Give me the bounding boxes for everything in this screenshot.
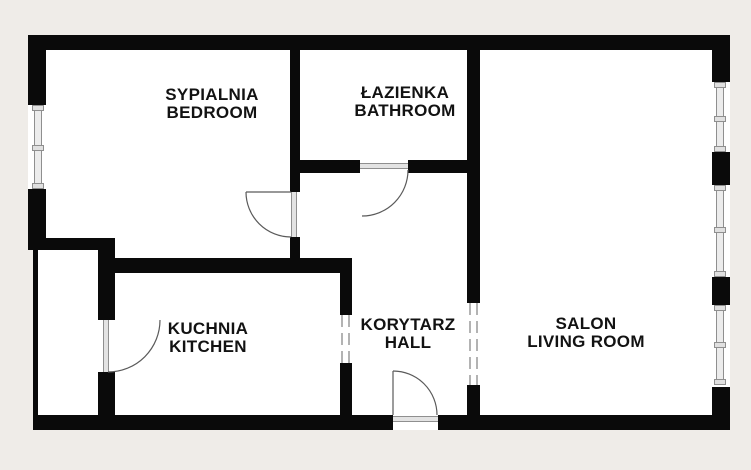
window-right-1-cap-bottom — [714, 146, 726, 152]
window-right-3-cap-bottom — [714, 379, 726, 385]
window-right-2-cap-mid — [714, 227, 726, 233]
room-label-living-room-pl: SALON — [486, 315, 686, 333]
window-right-2-cap-bottom — [714, 271, 726, 277]
room-label-bathroom: ŁAZIENKA BATHROOM — [305, 84, 505, 120]
window-right-3-cap-mid — [714, 342, 726, 348]
wall-kitchen-top — [115, 258, 352, 273]
room-label-bedroom-pl: SYPIALNIA — [112, 86, 312, 104]
window-right-1-cap-top — [714, 82, 726, 88]
wall-right-mid-2 — [712, 277, 730, 305]
room-label-hall: KORYTARZ HALL — [308, 316, 508, 352]
window-right-3-cap-top — [714, 305, 726, 311]
wall-right-upper — [712, 35, 730, 82]
wall-balcony-right-upper — [98, 250, 115, 320]
wall-left-thin — [33, 250, 38, 415]
wall-right-mid-1 — [712, 152, 730, 185]
wall-bathroom-bottom-right — [408, 160, 468, 173]
floor-area-upper — [28, 35, 730, 250]
wall-bottom-right — [438, 415, 730, 430]
bedroom-door — [291, 192, 297, 237]
room-label-bathroom-en: BATHROOM — [305, 102, 505, 120]
wall-bathroom-bottom-left — [290, 160, 360, 173]
room-label-kitchen-pl: KUCHNIA — [108, 320, 308, 338]
window-left-cap-top — [32, 105, 44, 111]
room-label-bathroom-pl: ŁAZIENKA — [305, 84, 505, 102]
window-left-cap-mid — [32, 145, 44, 151]
wall-right-lower — [712, 387, 730, 430]
room-label-bedroom-en: BEDROOM — [112, 104, 312, 122]
window-right-1-cap-mid — [714, 116, 726, 122]
wall-bottom-left — [33, 415, 393, 430]
room-label-living-room: SALON LIVING ROOM — [486, 315, 686, 351]
room-label-hall-en: HALL — [308, 334, 508, 352]
wall-top — [28, 35, 730, 50]
wall-salon-divider-lower — [467, 385, 480, 415]
wall-left-upper — [28, 35, 46, 105]
wall-kitchen-hall-lower — [340, 363, 352, 415]
room-label-kitchen: KUCHNIA KITCHEN — [108, 320, 308, 356]
wall-balcony-top — [33, 238, 115, 250]
room-label-living-room-en: LIVING ROOM — [486, 333, 686, 351]
bathroom-door — [360, 163, 408, 169]
floor-plan: SYPIALNIA BEDROOM ŁAZIENKA BATHROOM KUCH… — [0, 0, 751, 470]
wall-kitchen-hall-upper — [340, 273, 352, 315]
room-label-kitchen-en: KITCHEN — [108, 338, 308, 356]
wall-balcony-right-lower — [98, 372, 115, 415]
wall-bedroom-divider-lower — [290, 237, 300, 273]
room-label-bedroom: SYPIALNIA BEDROOM — [112, 86, 312, 122]
window-right-2-cap-top — [714, 185, 726, 191]
window-left-cap-bottom — [32, 183, 44, 189]
entrance-door-threshold — [393, 416, 438, 422]
room-label-hall-pl: KORYTARZ — [308, 316, 508, 334]
